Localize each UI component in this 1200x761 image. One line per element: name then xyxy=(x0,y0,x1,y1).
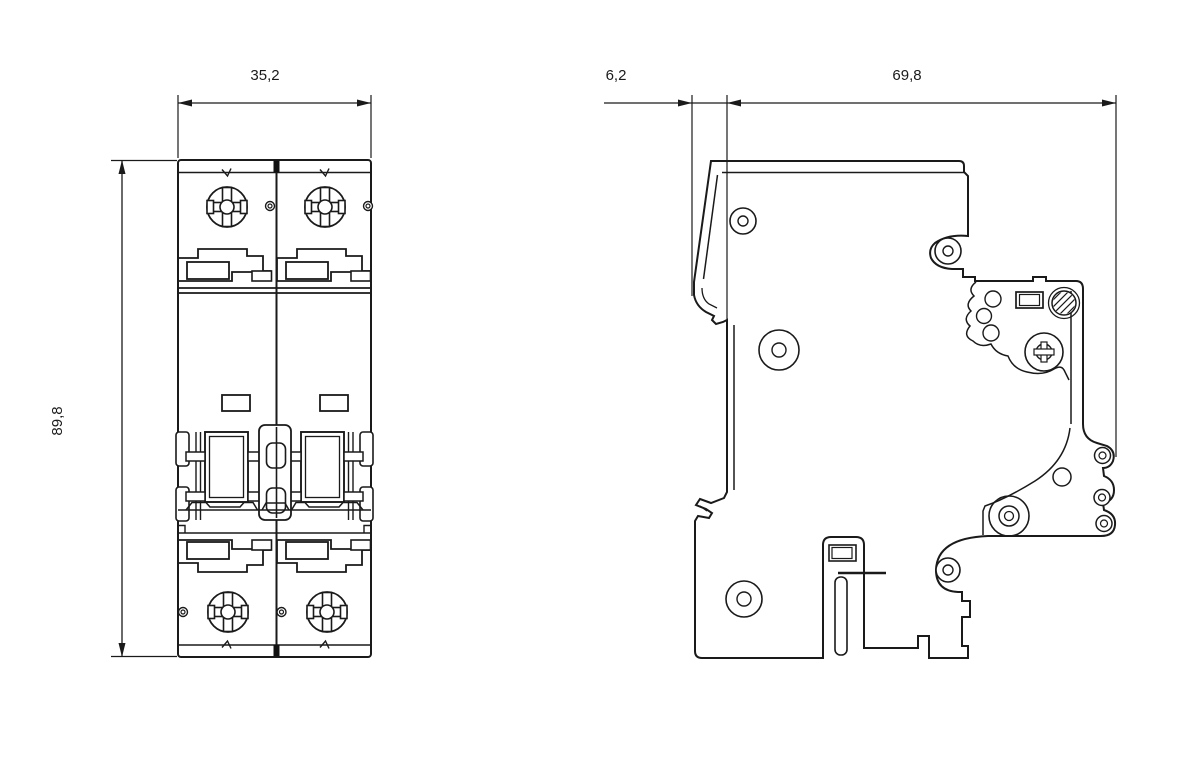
terminal-screw-bottom-left xyxy=(208,592,248,632)
test-window xyxy=(1016,292,1043,308)
terminal-screw-bottom-right xyxy=(307,592,347,632)
terminal-screw-top-left xyxy=(207,187,247,227)
dim-label-front-height: 89,8 xyxy=(49,406,66,435)
rivet-small xyxy=(277,608,286,617)
bottom-center-tick xyxy=(274,645,280,657)
dim-label-front-width: 35,2 xyxy=(250,67,279,84)
guide-hole xyxy=(1053,468,1071,486)
rivet-744-599 xyxy=(726,581,762,617)
side-profile-outline xyxy=(694,161,1115,658)
top-center-tick xyxy=(274,161,280,173)
technical-drawing-canvas: 35,2 89,8 6,2 69,8 xyxy=(0,0,1200,761)
rivet-small xyxy=(179,608,188,617)
front-view xyxy=(176,160,373,657)
rivet-948-251 xyxy=(935,238,961,264)
pivot-boss-779-350 xyxy=(759,330,799,370)
terminal-screw-top-right xyxy=(305,187,345,227)
rating-label-window-pole2 xyxy=(320,395,348,411)
actuator-slot xyxy=(835,577,847,655)
calibration-screw-boss xyxy=(1025,333,1063,371)
dim-label-clip-offset: 6,2 xyxy=(606,67,627,84)
rivet-743-221 xyxy=(730,208,756,234)
rivet-948-570 xyxy=(936,558,960,582)
dim-label-side-depth: 69,8 xyxy=(892,67,921,84)
side-view xyxy=(694,161,1115,658)
breaker-dimension-drawing: 35,2 89,8 6,2 69,8 xyxy=(0,0,1200,761)
rivet-small xyxy=(266,202,275,211)
rating-label-window-pole1 xyxy=(222,395,250,411)
rivet-small xyxy=(364,202,373,211)
